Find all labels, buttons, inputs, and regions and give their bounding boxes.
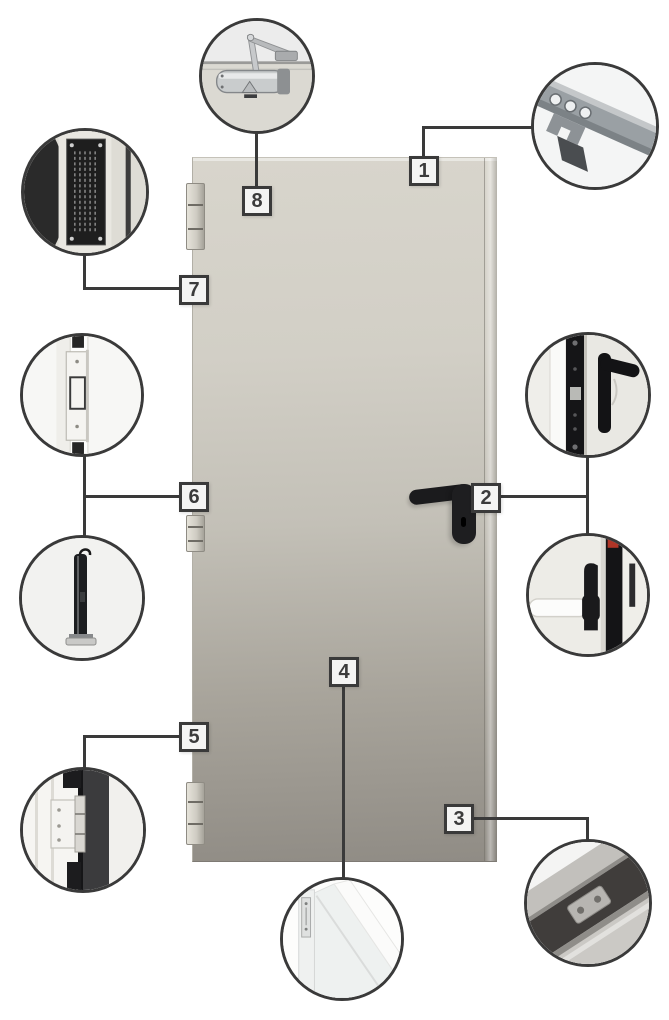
lock-handle-illustration bbox=[528, 335, 648, 455]
detail-closer-spring bbox=[19, 535, 145, 661]
detail-panic-bar bbox=[526, 533, 650, 657]
callout-box-4: 4 bbox=[329, 657, 359, 687]
callout-box-5: 5 bbox=[179, 722, 209, 752]
connector-2-horizontal bbox=[499, 495, 589, 498]
door-components-diagram: 1 2 3 4 5 6 7 8 bbox=[0, 0, 669, 1020]
connector-5-horizontal bbox=[83, 735, 182, 738]
detail-frame-anchor bbox=[531, 62, 659, 190]
certification-plate-illustration bbox=[24, 131, 146, 253]
frame-hinge-illustration bbox=[23, 770, 143, 890]
callout-number-2: 2 bbox=[480, 488, 491, 508]
detail-hinge-on-frame bbox=[20, 767, 146, 893]
detail-certification-plate bbox=[21, 128, 149, 256]
callout-number-6: 6 bbox=[188, 487, 199, 507]
detail-lock-and-handle bbox=[525, 332, 651, 458]
callout-box-2: 2 bbox=[471, 483, 501, 513]
callout-box-8: 8 bbox=[242, 186, 272, 216]
keyhole bbox=[461, 517, 466, 527]
door-top-highlight bbox=[193, 158, 497, 161]
callout-box-7: 7 bbox=[179, 275, 209, 305]
door-hinge-top bbox=[186, 183, 205, 250]
hinge-illustration bbox=[23, 336, 141, 454]
detail-door-cross-section bbox=[280, 877, 404, 1001]
spring-rod-illustration bbox=[22, 538, 142, 658]
connector-2-vertical bbox=[586, 456, 589, 535]
detail-frame-corner bbox=[524, 839, 652, 967]
door-closer-illustration bbox=[202, 21, 312, 131]
connector-6-horizontal bbox=[83, 495, 182, 498]
door-hinge-middle bbox=[186, 515, 205, 552]
callout-box-1: 1 bbox=[409, 156, 439, 186]
connector-4-vertical bbox=[342, 684, 345, 881]
connector-8-vertical bbox=[255, 132, 258, 188]
cross-section-illustration bbox=[283, 880, 401, 998]
connector-3-horizontal bbox=[472, 817, 589, 820]
frame-corner-illustration bbox=[527, 842, 649, 964]
callout-box-3: 3 bbox=[444, 804, 474, 834]
connector-7-horizontal bbox=[83, 287, 182, 290]
panic-bar-illustration bbox=[529, 536, 647, 654]
detail-hinge-open bbox=[20, 333, 144, 457]
connector-1-vertical bbox=[422, 126, 425, 159]
door-hinge-bottom bbox=[186, 782, 205, 845]
connector-5-vertical bbox=[83, 735, 86, 769]
callout-number-4: 4 bbox=[338, 662, 349, 682]
callout-number-8: 8 bbox=[251, 191, 262, 211]
callout-number-7: 7 bbox=[188, 280, 199, 300]
callout-number-3: 3 bbox=[453, 809, 464, 829]
callout-number-5: 5 bbox=[188, 727, 199, 747]
connector-7-vertical bbox=[83, 254, 86, 290]
connector-1-horizontal bbox=[422, 126, 534, 129]
frame-anchor-illustration bbox=[534, 65, 656, 187]
callout-number-1: 1 bbox=[418, 161, 429, 181]
callout-box-6: 6 bbox=[179, 482, 209, 512]
detail-door-closer bbox=[199, 18, 315, 134]
